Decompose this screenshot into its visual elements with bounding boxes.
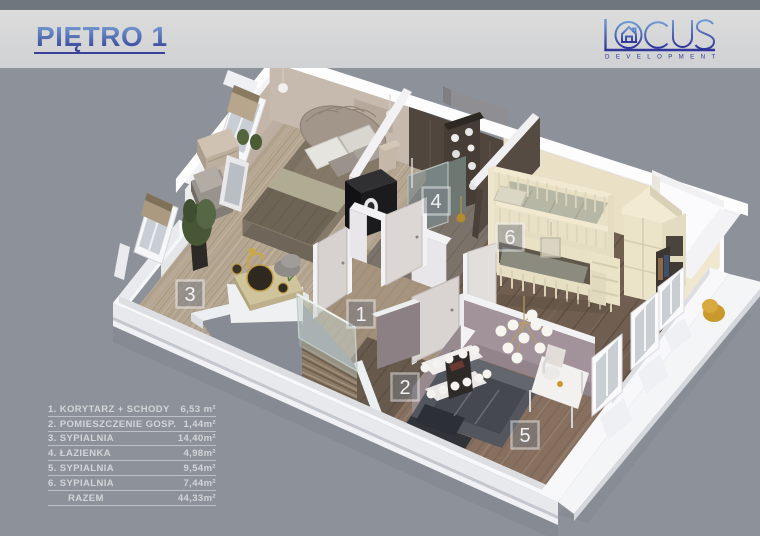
svg-text:5: 5 [519,425,530,447]
svg-text:4: 4 [430,191,441,213]
svg-text:2: 2 [399,377,410,399]
svg-text:1: 1 [355,304,366,326]
svg-text:DEVELOPMENT: DEVELOPMENT [605,54,722,61]
svg-text:6: 6 [504,227,515,249]
svg-text:3: 3 [184,284,195,306]
